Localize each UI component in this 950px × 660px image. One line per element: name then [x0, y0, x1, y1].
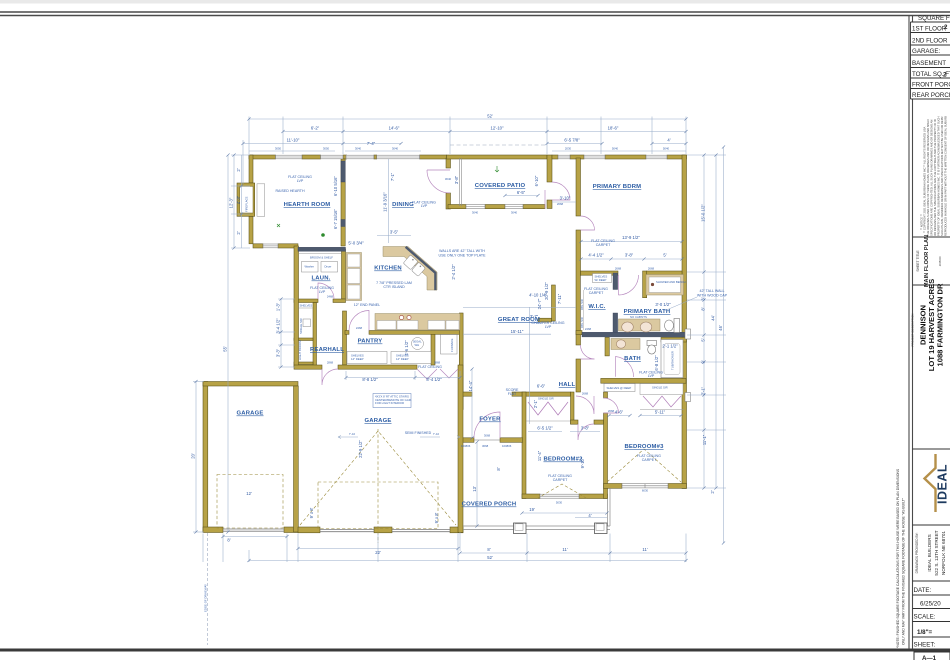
svg-text:11'-10": 11'-10": [287, 138, 300, 143]
svg-text:3'-8": 3'-8": [581, 426, 590, 431]
svg-text:SINGLE S/R: SINGLE S/R: [538, 397, 554, 401]
svg-text:9' x 8': 9' x 8': [309, 507, 314, 518]
svg-text:2468: 2468: [585, 327, 592, 331]
svg-text:USE ONLY ONE TOP PLATE: USE ONLY ONE TOP PLATE: [439, 254, 487, 258]
svg-text:12'-3": 12'-3": [229, 197, 234, 208]
svg-text:3'-3": 3'-3": [276, 348, 281, 357]
svg-text:3050: 3050: [275, 147, 282, 151]
svg-text:3040: 3040: [445, 177, 452, 181]
svg-text:2468: 2468: [356, 326, 363, 330]
svg-text:FLAT CEILING: FLAT CEILING: [418, 365, 442, 369]
svg-text:A—1: A—1: [922, 655, 937, 660]
svg-text:11': 11': [562, 547, 567, 552]
svg-text:2668: 2668: [557, 202, 564, 206]
svg-text:8'-8 1/2": 8'-8 1/2": [362, 377, 378, 382]
svg-text:2868: 2868: [434, 361, 441, 365]
svg-text:14'-4": 14'-4": [468, 380, 473, 391]
svg-text:W.I.C.: W.I.C.: [588, 304, 605, 310]
svg-text:PROPERTY OF IDEAL SUBURBAN HOM: PROPERTY OF IDEAL SUBURBAN HOMES INC. IT…: [937, 116, 941, 236]
svg-text:SINGLE S/R: SINGLE S/R: [299, 318, 303, 334]
svg-text:6'-10": 6'-10": [534, 175, 539, 186]
svg-text:44': 44': [711, 315, 716, 321]
svg-text:522 S. 13TH STREET: 522 S. 13TH STREET: [934, 530, 939, 575]
svg-text:6/25/20: 6/25/20: [920, 601, 941, 608]
svg-text:FRONT PORCH: FRONT PORCH: [912, 82, 950, 89]
svg-text:3068: 3068: [482, 444, 489, 448]
svg-text:THE ORIGINALS AND COPIES OF TH: THE ORIGINALS AND COPIES OF THESE PLANS,…: [926, 119, 930, 236]
svg-text:6'-2": 6'-2": [311, 126, 320, 131]
svg-text:6'-7 15/16": 6'-7 15/16": [333, 208, 338, 228]
svg-text:2668: 2668: [648, 267, 655, 271]
svg-text:4': 4': [588, 513, 591, 518]
svg-text:BASEMENT: BASEMENT: [912, 60, 946, 67]
svg-text:LIGHT BROOM: LIGHT BROOM: [298, 340, 302, 360]
svg-text:2668: 2668: [582, 392, 589, 396]
svg-text:42" TALL WALL: 42" TALL WALL: [699, 289, 724, 293]
svg-text:3'-8": 3'-8": [625, 253, 634, 258]
svg-text:*NOTE: FINISHED SQUARE FOOTAG: *NOTE: FINISHED SQUARE FOOTAGE CALCULATI…: [896, 468, 900, 648]
svg-text:IDEAL: IDEAL: [936, 464, 950, 504]
svg-text:5030: 5030: [556, 501, 563, 505]
svg-text:8': 8': [701, 307, 706, 310]
svg-text:JOB ID:: JOB ID:: [938, 256, 942, 267]
svg-text:OR DESIGNS AND THE SPECIFICATI: OR DESIGNS AND THE SPECIFICATIONS ARE TH…: [933, 119, 937, 236]
svg-text:DATE:: DATE:: [914, 587, 932, 594]
svg-text:52': 52': [487, 555, 493, 560]
svg-text:52': 52': [487, 114, 493, 119]
svg-text:7'-11": 7'-11": [557, 293, 562, 304]
svg-text:HALL: HALL: [559, 382, 576, 388]
svg-text:COVERED PATIO: COVERED PATIO: [475, 183, 526, 189]
svg-text:KITCHEN: KITCHEN: [374, 266, 402, 272]
svg-text:5040: 5040: [663, 147, 670, 151]
svg-text:BEDROOM#3: BEDROOM#3: [624, 444, 664, 450]
svg-text:13'-9 1/2": 13'-9 1/2": [622, 235, 640, 240]
svg-text:DRAWINGS PROVIDED BY:: DRAWINGS PROVIDED BY:: [915, 532, 919, 573]
svg-text:CTR ISLAND: CTR ISLAND: [383, 285, 405, 289]
svg-text:EDGE OF DRIVEWAY: EDGE OF DRIVEWAY: [204, 584, 208, 612]
svg-text:SHELVES: SHELVES: [300, 304, 313, 308]
svg-text:22'-9 1/2": 22'-9 1/2": [358, 440, 363, 458]
svg-text:14'-6": 14'-6": [389, 126, 400, 131]
svg-text:DINING: DINING: [392, 202, 414, 208]
svg-text:SHELVES @ DEEP: SHELVES @ DEEP: [607, 386, 632, 390]
svg-text:COVERED PORCH: COVERED PORCH: [462, 502, 517, 508]
svg-text:HEARTH ROOM: HEARTH ROOM: [284, 202, 331, 208]
svg-text:DBL S/R: DBL S/R: [580, 317, 584, 328]
svg-text:14" DEEP: 14" DEEP: [351, 357, 364, 361]
svg-text:4': 4': [667, 138, 670, 143]
svg-text:19': 19': [529, 507, 535, 512]
svg-text:FIREPLACE: FIREPLACE: [245, 196, 249, 212]
svg-text:7'-10: 7'-10: [349, 432, 356, 436]
svg-text:18'-6": 18'-6": [608, 126, 619, 131]
svg-text:12'-10": 12'-10": [491, 126, 505, 131]
svg-text:3050: 3050: [323, 147, 330, 151]
svg-text:CARPET: CARPET: [596, 243, 611, 247]
svg-text:6'-5 7/8": 6'-5 7/8": [564, 138, 580, 143]
svg-text:FLAT: FLAT: [508, 392, 517, 396]
svg-text:CARPET: CARPET: [589, 291, 604, 295]
svg-text:SPECIFICATIONS ARE COPYRIGHTED: SPECIFICATIONS ARE COPYRIGHTED. ALL SUCH…: [930, 120, 934, 236]
svg-text:11'-4": 11'-4": [537, 450, 542, 461]
svg-text:46': 46': [718, 325, 723, 331]
svg-text:2030: 2030: [565, 147, 572, 151]
svg-text:1ST FLOOR: 1ST FLOOR: [912, 26, 947, 33]
svg-text:BATH: BATH: [624, 356, 641, 362]
svg-text:3'-4 1/2": 3'-4 1/2": [276, 318, 281, 334]
svg-text:4'-4 1/2": 4'-4 1/2": [588, 253, 604, 258]
svg-text:FOR LIGHT INTERIOR: FOR LIGHT INTERIOR: [375, 401, 404, 405]
svg-text:REARHALL: REARHALL: [310, 347, 344, 353]
svg-text:8'-4 1/2": 8'-4 1/2": [426, 377, 442, 382]
svg-text:2: 2: [943, 72, 947, 79]
svg-text:14" DEEP: 14" DEEP: [396, 357, 409, 361]
svg-text:Dryer: Dryer: [325, 265, 332, 269]
svg-text:6030: 6030: [642, 489, 649, 493]
svg-text:SHOWER AND BENCH: SHOWER AND BENCH: [656, 280, 686, 284]
svg-text:6'-10 5/16": 6'-10 5/16": [333, 175, 338, 195]
svg-text:11'-9 3/16": 11'-9 3/16": [383, 192, 388, 212]
svg-text:6'-8 1/2": 6'-8 1/2": [654, 355, 659, 371]
svg-text:PANTRY: PANTRY: [358, 339, 383, 345]
svg-text:5'-11": 5'-11": [655, 410, 666, 415]
svg-text:GARAGE:: GARAGE:: [912, 48, 940, 55]
svg-text:DBL S/R: DBL S/R: [580, 299, 584, 310]
svg-text:4'-10 1/4": 4'-10 1/4": [529, 293, 547, 298]
svg-text:LVP: LVP: [319, 290, 326, 294]
svg-text:7'-1": 7'-1": [390, 172, 395, 181]
svg-text:SUCH PLANS, DRAWINGS RENDERING: SUCH PLANS, DRAWINGS RENDERINGS AND SPEC…: [940, 116, 944, 236]
svg-text:SHEET:: SHEET:: [914, 642, 936, 649]
svg-text:W/ DEEP: W/ DEEP: [595, 278, 607, 282]
svg-text:LVP: LVP: [421, 204, 428, 208]
svg-text:TUB/SHOWER: TUB/SHOWER: [671, 351, 675, 370]
svg-text:2: 2: [944, 24, 948, 31]
svg-text:1088 FARMINGTON DR: 1088 FARMINGTON DR: [936, 283, 945, 367]
svg-text:100806: 100806: [502, 444, 512, 448]
svg-text:5': 5': [701, 338, 706, 341]
svg-text:ONLY AND MAY VARY FROM THE FIN: ONLY AND MAY VARY FROM THE FINISHED SQUA…: [902, 497, 906, 645]
svg-text:22': 22': [375, 550, 381, 555]
svg-text:2': 2': [236, 168, 241, 171]
svg-text:7'-4": 7'-4": [367, 141, 376, 146]
svg-text:5'-0 3/4": 5'-0 3/4": [348, 241, 364, 246]
svg-text:3': 3': [701, 297, 706, 300]
svg-text:2': 2': [710, 490, 715, 493]
svg-text:9': 9': [701, 360, 706, 363]
svg-text:SCALE:: SCALE:: [914, 614, 936, 621]
svg-text:55': 55': [223, 346, 228, 352]
svg-text:2868: 2868: [327, 361, 334, 365]
svg-text:LVP: LVP: [545, 325, 552, 329]
svg-text:CARPET: CARPET: [553, 478, 568, 482]
svg-text:15'-0 1/2": 15'-0 1/2": [701, 204, 706, 222]
svg-text:3040: 3040: [355, 147, 362, 151]
svg-text:11'-1": 11'-1": [702, 434, 707, 445]
svg-text:20': 20': [191, 453, 196, 459]
svg-text:6'-5": 6'-5": [517, 190, 526, 195]
svg-text:NO CAB'NTS: NO CAB'NTS: [630, 315, 647, 319]
svg-text:RAISED HEARTH: RAISED HEARTH: [275, 189, 304, 193]
svg-text:IDEAL BUILDERS: IDEAL BUILDERS: [927, 534, 932, 571]
svg-text:2'-1": 2'-1": [533, 399, 538, 408]
svg-text:PROJECT DESCRIPTION: PROJECT DESCRIPTION: [911, 314, 915, 347]
svg-text:3'-10": 3'-10": [560, 196, 571, 201]
svg-text:WITH WOOD CAP: WITH WOOD CAP: [697, 294, 728, 298]
svg-text:BEDROOM#2: BEDROOM#2: [543, 457, 583, 463]
svg-text:2668: 2668: [615, 267, 622, 271]
svg-text:SHEET TITLE: SHEET TITLE: [916, 250, 920, 272]
svg-text:WH: WH: [415, 343, 420, 347]
svg-text:1'-3": 1'-3": [276, 302, 281, 311]
svg-text:LVP: LVP: [297, 179, 304, 183]
svg-text:3040: 3040: [511, 211, 518, 215]
svg-text:NORFOLK NE 68701: NORFOLK NE 68701: [941, 531, 946, 575]
svg-text:1/8"=: 1/8"=: [917, 629, 933, 636]
svg-text:BROOM & SHELF: BROOM & SHELF: [310, 256, 333, 260]
svg-text:6'-5 1/2": 6'-5 1/2": [537, 426, 553, 431]
svg-text:WALLS ARE 42" TALL WITH: WALLS ARE 42" TALL WITH: [439, 249, 485, 253]
svg-text:11': 11': [642, 547, 647, 552]
svg-text:SINGLE S/R: SINGLE S/R: [652, 386, 668, 390]
svg-text:4'-6 1/2": 4'-6 1/2": [404, 340, 409, 356]
svg-text:2ND FLOOR: 2ND FLOOR: [912, 38, 948, 45]
svg-text:PRIMARY BDRM: PRIMARY BDRM: [593, 184, 642, 190]
svg-text:24'-7": 24'-7": [537, 298, 542, 309]
svg-text:3'-0 1/2": 3'-0 1/2": [655, 302, 671, 307]
svg-text:12" END PANEL: 12" END PANEL: [354, 303, 380, 307]
svg-text:5': 5': [663, 253, 666, 258]
svg-text:FOYER: FOYER: [479, 417, 501, 423]
svg-text:LVP: LVP: [648, 374, 655, 378]
svg-text:CARPET: CARPET: [642, 458, 657, 462]
svg-text:PRIMARY BATH: PRIMARY BATH: [624, 309, 671, 315]
svg-text:GARAGE: GARAGE: [364, 418, 391, 424]
svg-text:GARAGE: GARAGE: [236, 411, 263, 417]
svg-text:SEMI FINISHED: SEMI FINISHED: [405, 431, 432, 435]
svg-text:100806: 100806: [461, 444, 471, 448]
svg-text:9' x 8': 9' x 8': [434, 512, 439, 523]
svg-text:12': 12': [246, 491, 252, 496]
svg-text:8': 8': [487, 547, 490, 552]
svg-text:2668: 2668: [608, 409, 615, 413]
svg-text:FURNACE: FURNACE: [450, 338, 454, 352]
svg-text:2': 2': [236, 231, 241, 234]
svg-text:3040: 3040: [392, 147, 399, 151]
svg-text:4'-3": 4'-3": [236, 195, 241, 204]
svg-text:SQUARE FO: SQUARE FO: [918, 15, 950, 22]
svg-text:3068: 3068: [484, 434, 491, 438]
svg-text:2'-1 1/2": 2'-1 1/2": [662, 344, 678, 349]
svg-text:2468: 2468: [327, 295, 334, 299]
svg-text:4'-6": 4'-6": [615, 410, 624, 415]
svg-text:2'-1": 2'-1": [701, 386, 706, 395]
svg-text:2'-4 1/2": 2'-4 1/2": [451, 264, 456, 280]
svg-text:6'-6": 6'-6": [537, 384, 546, 389]
svg-text:5040: 5040: [612, 147, 619, 151]
svg-text:REPRODUCED IN WHOLE OR IN PART: REPRODUCED IN WHOLE OR IN PART WITHOUT T…: [944, 116, 948, 236]
svg-text:REAR PORCH: REAR PORCH: [912, 92, 950, 99]
svg-text:7'-10: 7'-10: [433, 432, 440, 436]
svg-text:15'-11": 15'-11": [511, 329, 524, 334]
svg-text:Washer: Washer: [305, 265, 315, 269]
svg-text:8': 8': [496, 467, 501, 470]
svg-text:3'-8": 3'-8": [454, 175, 459, 184]
svg-text:3040: 3040: [472, 211, 479, 215]
svg-text:3'-5": 3'-5": [390, 230, 399, 235]
svg-text:LAUN.: LAUN.: [312, 276, 331, 282]
svg-text:** COPYRIGHT 2021 IDEAL SUBURB: ** COPYRIGHT 2021 IDEAL SUBURBAN HOMES I…: [923, 126, 927, 233]
svg-text:8': 8': [227, 538, 230, 543]
svg-text:13': 13': [472, 486, 477, 492]
